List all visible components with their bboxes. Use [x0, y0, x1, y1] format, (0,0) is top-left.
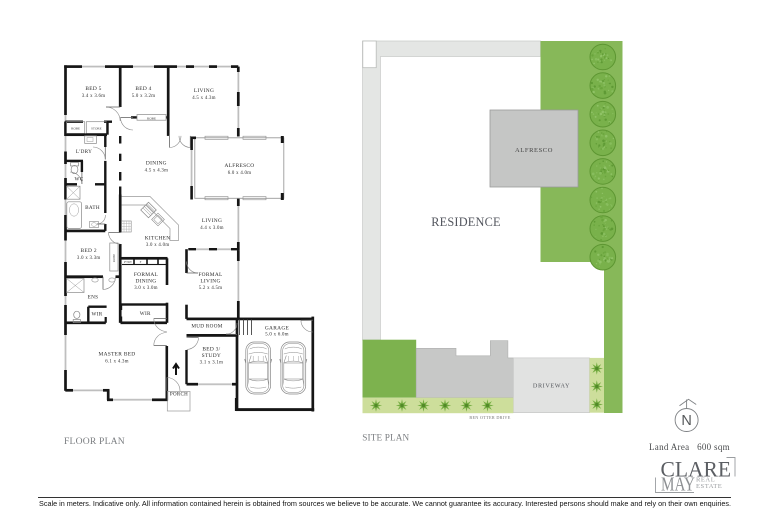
svg-text:6.1 x 4.3m: 6.1 x 4.3m: [105, 360, 129, 365]
svg-text:6.0 x 4.0m: 6.0 x 4.0m: [228, 171, 252, 176]
svg-text:3.0 x 3.3m: 3.0 x 3.3m: [77, 256, 101, 261]
svg-text:BATH: BATH: [85, 205, 100, 211]
svg-text:BED 4: BED 4: [135, 86, 151, 92]
svg-text:DRIVEWAY: DRIVEWAY: [533, 383, 570, 390]
svg-text:3.0 x 3.0m: 3.0 x 3.0m: [134, 286, 158, 291]
svg-text:LIVING: LIVING: [202, 218, 222, 224]
svg-text:DINING: DINING: [146, 161, 167, 167]
svg-text:FLOOR PLAN: FLOOR PLAN: [64, 436, 125, 447]
svg-text:RESIDENCE: RESIDENCE: [431, 215, 500, 229]
svg-text:ROBE: ROBE: [112, 254, 116, 263]
svg-text:ALFRESCO: ALFRESCO: [515, 147, 553, 154]
svg-text:PORCH: PORCH: [170, 393, 188, 398]
svg-text:4.5 x 4.3m: 4.5 x 4.3m: [192, 96, 216, 101]
svg-text:MASTER BED: MASTER BED: [99, 352, 136, 358]
svg-text:BED 3/: BED 3/: [202, 347, 220, 353]
svg-text:N: N: [681, 413, 691, 429]
svg-text:3.1 x 3.1m: 3.1 x 3.1m: [200, 361, 224, 366]
svg-text:5.0 x 3.2m: 5.0 x 3.2m: [132, 94, 156, 99]
svg-text:Scale in meters. Indicative on: Scale in meters. Indicative only. All in…: [39, 499, 731, 508]
svg-text:FORMAL: FORMAL: [134, 272, 158, 278]
svg-text:3.0 x 4.0m: 3.0 x 4.0m: [146, 243, 170, 248]
svg-text:BED 2: BED 2: [81, 248, 97, 254]
svg-text:ALFRESCO: ALFRESCO: [225, 163, 255, 169]
svg-text:STORE: STORE: [91, 127, 102, 131]
svg-text:WIR: WIR: [92, 312, 103, 318]
svg-text:F: F: [140, 260, 142, 264]
svg-text:BEN OTTER DRIVE: BEN OTTER DRIVE: [469, 415, 510, 420]
svg-text:P'TRY: P'TRY: [124, 260, 133, 264]
svg-text:5.2 x 4.5m: 5.2 x 4.5m: [199, 286, 223, 291]
svg-text:WIR: WIR: [140, 311, 151, 317]
svg-text:ROBE: ROBE: [147, 117, 156, 121]
svg-text:4.4 x 3.0m: 4.4 x 3.0m: [200, 226, 224, 231]
svg-text:ENS: ENS: [88, 295, 99, 301]
svg-text:MUD ROOM: MUD ROOM: [191, 324, 222, 330]
svg-text:KITCHEN: KITCHEN: [145, 236, 171, 242]
svg-text:GARAGE: GARAGE: [265, 326, 290, 332]
svg-text:DINING: DINING: [136, 279, 157, 285]
svg-text:LIVING: LIVING: [194, 88, 214, 94]
svg-text:5.0 x 6.0m: 5.0 x 6.0m: [265, 333, 289, 338]
svg-text:3.4 x 3.6m: 3.4 x 3.6m: [82, 94, 106, 99]
svg-text:BED 5: BED 5: [85, 86, 101, 92]
svg-text:FORMAL: FORMAL: [198, 272, 222, 278]
svg-text:WC: WC: [75, 177, 84, 183]
svg-text:STUDY: STUDY: [202, 353, 221, 359]
svg-text:ROBE: ROBE: [71, 127, 80, 131]
svg-text:ESTATE: ESTATE: [696, 483, 722, 490]
svg-text:LIVING: LIVING: [200, 279, 220, 285]
svg-text:L'DRY: L'DRY: [76, 149, 92, 155]
svg-text:4.5 x 4.3m: 4.5 x 4.3m: [145, 169, 169, 174]
svg-text:Land Area 600 sqm: Land Area 600 sqm: [649, 442, 730, 452]
svg-text:SITE PLAN: SITE PLAN: [362, 433, 409, 443]
